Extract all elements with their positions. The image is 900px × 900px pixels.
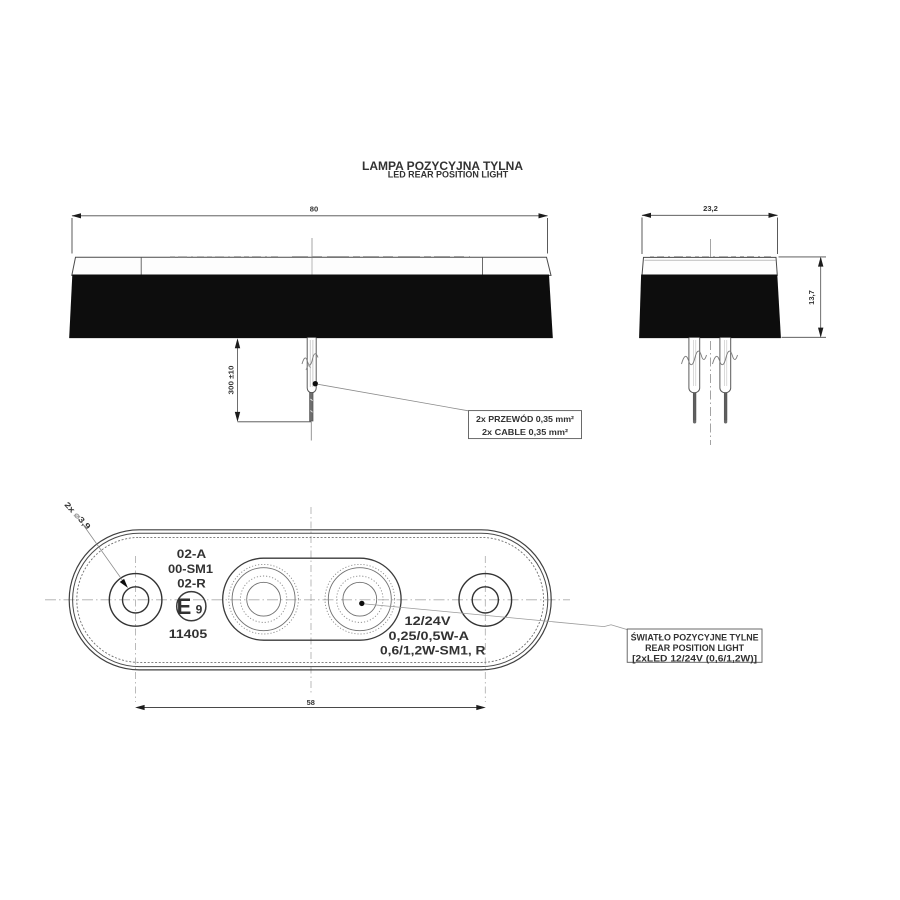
svg-text:E: E [177,594,192,619]
svg-text:ŚWIATŁO POZYCYJNE TYLNE: ŚWIATŁO POZYCYJNE TYLNE [631,631,760,643]
svg-text:02-A: 02-A [177,548,207,561]
svg-text:2x CABLE 0,35 mm²: 2x CABLE 0,35 mm² [482,427,568,437]
svg-text:12/24V: 12/24V [405,615,451,628]
svg-text:0,6/1,2W-SM1, R: 0,6/1,2W-SM1, R [380,645,486,658]
svg-text:2x PRZEWÓD 0,35 mm²: 2x PRZEWÓD 0,35 mm² [476,413,574,424]
svg-text:0,25/0,5W-A: 0,25/0,5W-A [389,630,470,643]
svg-text:9: 9 [196,603,203,617]
svg-text:58: 58 [307,698,315,707]
svg-text:LED REAR POSITION LIGHT: LED REAR POSITION LIGHT [388,170,509,180]
svg-text:13,7: 13,7 [807,290,816,305]
svg-text:23,2: 23,2 [703,204,718,213]
svg-text:300 ±10: 300 ±10 [227,366,236,395]
svg-text:00-SM1: 00-SM1 [168,563,214,576]
svg-text:2x ⌀3,9: 2x ⌀3,9 [63,500,93,532]
svg-text:02-R: 02-R [177,577,206,590]
svg-text:11405: 11405 [169,627,208,641]
svg-text:80: 80 [310,205,318,214]
svg-text:[2xLED 12/24V (0,6/1,2W)]: [2xLED 12/24V (0,6/1,2W)] [632,653,757,664]
